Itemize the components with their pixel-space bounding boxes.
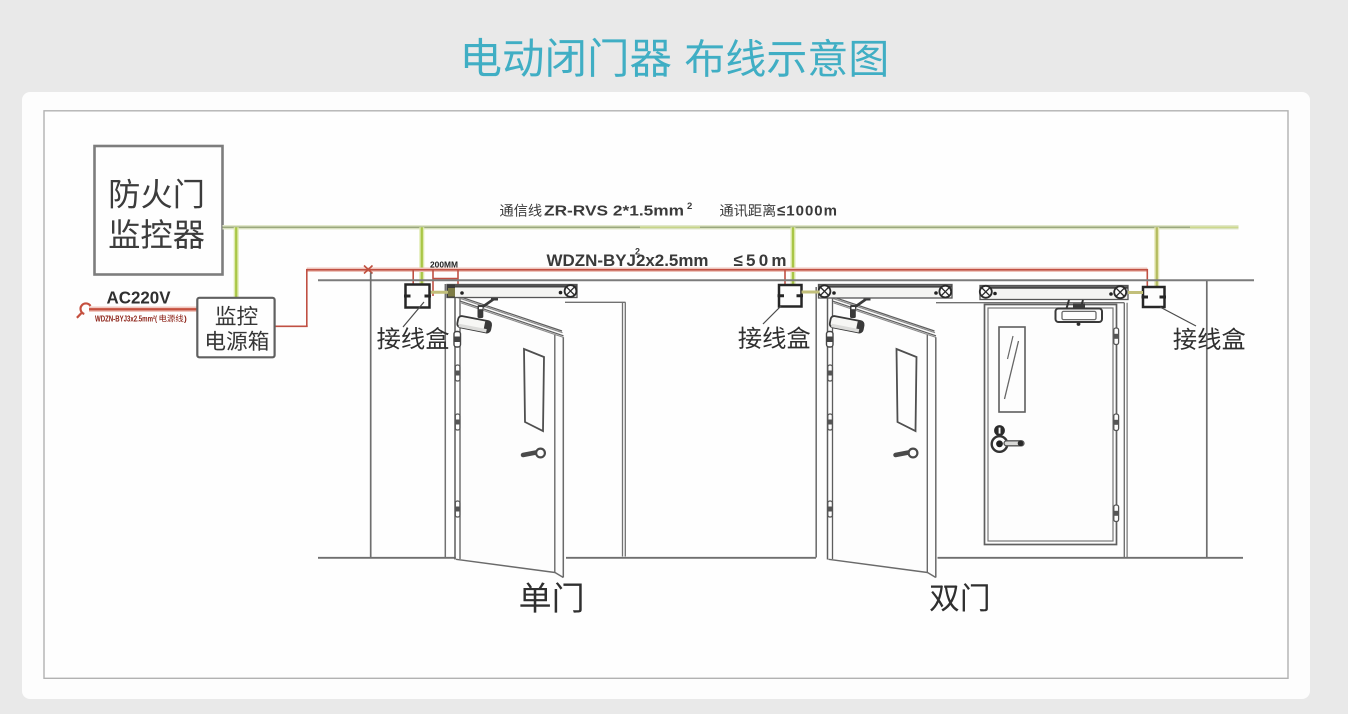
svg-text:): ) bbox=[184, 315, 187, 324]
svg-text:WDZN-BYJ2x2.5mm: WDZN-BYJ2x2.5mm bbox=[547, 251, 709, 270]
svg-text:≤50m: ≤50m bbox=[734, 251, 787, 270]
svg-text:WDZN-BYJ3x2.5mm²(: WDZN-BYJ3x2.5mm²( bbox=[95, 315, 157, 324]
svg-text:≤1000m: ≤1000m bbox=[777, 203, 837, 220]
svg-text:AC220V: AC220V bbox=[107, 288, 171, 308]
svg-text:2: 2 bbox=[687, 201, 692, 212]
svg-text:200MM: 200MM bbox=[430, 260, 458, 270]
svg-text:2: 2 bbox=[635, 247, 640, 257]
svg-text:ZR-RVS 2*1.5mm: ZR-RVS 2*1.5mm bbox=[544, 203, 684, 220]
